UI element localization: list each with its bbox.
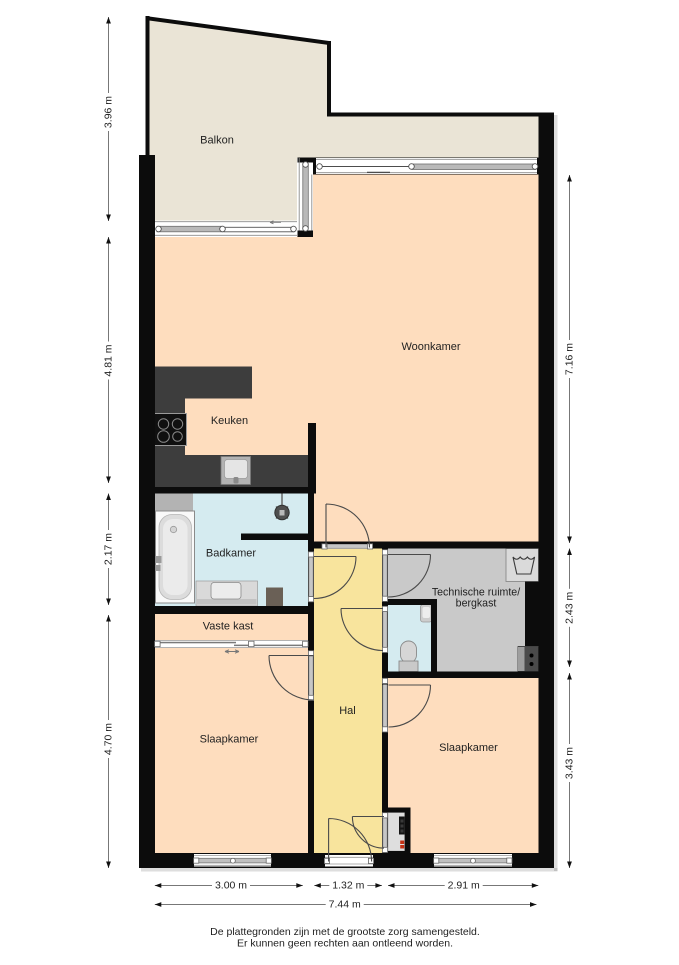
svg-text:Badkamer: Badkamer	[206, 548, 256, 560]
svg-text:Slaapkamer: Slaapkamer	[439, 742, 498, 754]
svg-text:7.44 m: 7.44 m	[329, 899, 361, 911]
svg-text:Keuken: Keuken	[211, 415, 248, 427]
svg-text:De plattegronden zijn met de g: De plattegronden zijn met de grootste zo…	[210, 926, 480, 938]
svg-text:Hal: Hal	[339, 705, 356, 717]
svg-text:4.81 m: 4.81 m	[103, 344, 115, 376]
svg-text:bergkast: bergkast	[456, 598, 497, 610]
svg-text:3.96 m: 3.96 m	[103, 96, 115, 128]
svg-text:Vaste kast: Vaste kast	[203, 621, 254, 633]
svg-text:Slaapkamer: Slaapkamer	[200, 734, 259, 746]
svg-text:3.43 m: 3.43 m	[564, 747, 576, 779]
svg-text:3.00 m: 3.00 m	[215, 880, 247, 892]
svg-text:Woonkamer: Woonkamer	[401, 341, 460, 353]
svg-text:1.32 m: 1.32 m	[332, 880, 364, 892]
svg-text:Er kunnen geen rechten aan ont: Er kunnen geen rechten aan ontleend word…	[237, 938, 453, 950]
svg-text:7.16 m: 7.16 m	[564, 343, 576, 375]
svg-text:2.43 m: 2.43 m	[564, 592, 576, 624]
svg-text:4.70 m: 4.70 m	[103, 723, 115, 755]
svg-text:2.17 m: 2.17 m	[103, 533, 115, 565]
svg-text:2.91 m: 2.91 m	[448, 880, 480, 892]
svg-text:Balkon: Balkon	[200, 135, 234, 147]
